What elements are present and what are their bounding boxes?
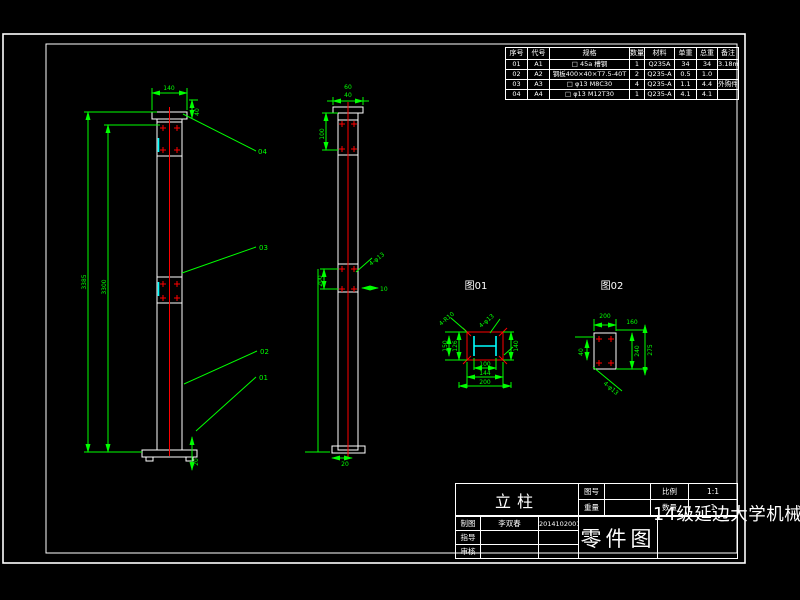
bom-cell: A3	[528, 80, 550, 90]
dim-text: 126	[452, 340, 459, 352]
side-dim-upper: 100	[319, 113, 338, 150]
bom-header: 单重	[675, 48, 697, 60]
bom-cell: Q235-A	[645, 70, 675, 80]
bom-cell: 0.5	[675, 70, 697, 80]
balloon-04: 04	[258, 148, 267, 156]
bom-cell: 4.4	[697, 80, 718, 90]
dim-text: 160	[626, 319, 638, 326]
scale-label: 比例	[651, 484, 689, 500]
bom-table: 序号 代号 规格 数量 材料 单重 总重 备注 01 A1 □ 45a 槽钢 1…	[505, 47, 739, 100]
weight-value	[605, 500, 651, 516]
bom-cell	[718, 70, 739, 80]
side-view: 60 40 100 200 4-φ13 10 20	[305, 84, 388, 468]
fig01-label: 图01	[465, 280, 488, 292]
dim-text: 60	[344, 84, 352, 91]
checker-name	[481, 545, 539, 559]
dim-text: 200	[599, 313, 611, 320]
part-balloons: 04 03 02 01	[182, 114, 269, 431]
bom-cell: Q235-A	[645, 90, 675, 100]
dim-text: 10	[380, 286, 388, 293]
detail-fig02: 图02 200 160 240 275 40 4-φ13	[575, 280, 654, 397]
drawing-no-label: 图号	[579, 484, 605, 500]
side-dim-top: 60 40	[327, 84, 369, 105]
bom-cell: 03	[506, 80, 528, 90]
drawn-label: 制图	[456, 517, 481, 531]
bom-cell: 02	[506, 70, 528, 80]
table-row: 02 A2 钢板400×40×T7.5-40T 2 Q235-A 0.5 1.0	[506, 70, 739, 80]
bom-cell: 1.0	[697, 70, 718, 80]
bom-cell: A1	[528, 60, 550, 70]
bom-header: 数量	[630, 48, 645, 60]
advisor-name	[481, 531, 539, 545]
table-row: 01 A1 □ 45a 槽钢 1 Q235A 34 34 3.18m	[506, 60, 739, 70]
bom-header: 总重	[697, 48, 718, 60]
dim-text: 40	[344, 92, 352, 99]
bom-header: 材料	[645, 48, 675, 60]
dim-text: 20	[341, 461, 349, 468]
bom-cell: 1	[630, 90, 645, 100]
bom-cell: 01	[506, 60, 528, 70]
scale-value: 1:1	[689, 484, 738, 500]
bom-cell: A2	[528, 70, 550, 80]
dim-text: 4-φ13	[478, 313, 496, 330]
fig02-plate-outline	[594, 333, 616, 369]
bom-cell: 钢板400×40×T7.5-40T	[550, 70, 630, 80]
bom-cell: 2	[630, 70, 645, 80]
drawn-id: 2014102001	[539, 517, 579, 531]
drawing-no-value	[605, 484, 651, 500]
bom-cell: Q235A	[645, 60, 675, 70]
bom-header-row: 序号 代号 规格 数量 材料 单重 总重 备注	[506, 48, 739, 60]
bom-cell: 34	[675, 60, 697, 70]
page-title: 立柱	[456, 484, 579, 516]
dim-text: 4-φ13	[602, 380, 620, 397]
bom-cell	[718, 90, 739, 100]
side-dim-middle: 200 4-φ13 10	[317, 251, 388, 452]
dim-text: 40	[194, 108, 201, 116]
bom-cell: 34	[697, 60, 718, 70]
bom-cell: 1.1	[675, 80, 697, 90]
front-dim-top: 140 40	[152, 85, 201, 118]
side-dim-base: 20	[305, 452, 352, 468]
bom-cell: □ φ13 M12T30	[550, 90, 630, 100]
front-dim-height: 3385 3300	[81, 112, 160, 452]
bom-header: 代号	[528, 48, 550, 60]
balloon-01: 01	[259, 374, 268, 382]
dim-text: 140	[513, 340, 520, 352]
table-row: 04 A4 □ φ13 M12T30 1 Q235-A 4.1 4.1	[506, 90, 739, 100]
dim-text: 40	[578, 348, 585, 356]
balloon-03: 03	[259, 244, 268, 252]
bom-cell: □ φ13 M8C30	[550, 80, 630, 90]
fig01-channel-section	[474, 336, 496, 356]
checker-label: 审核	[456, 545, 481, 559]
doc-type: 零件图	[579, 517, 658, 559]
fig02-label: 图02	[601, 280, 624, 292]
bom-cell: A4	[528, 90, 550, 100]
bom-cell: 1	[630, 60, 645, 70]
school-name: 14级延边大学机械系	[653, 501, 800, 526]
advisor-date	[539, 531, 579, 545]
bom-header: 规格	[550, 48, 630, 60]
fig02-hole-marks	[596, 336, 614, 366]
bom-header: 序号	[506, 48, 528, 60]
bom-cell: □ 45a 槽钢	[550, 60, 630, 70]
balloon-02: 02	[260, 348, 269, 356]
cad-sheet: 140 40 3385 3300 20 04 03	[0, 0, 800, 600]
dim-text: 240	[634, 345, 641, 357]
bom-cell: 04	[506, 90, 528, 100]
dim-text: 150	[442, 340, 449, 352]
bom-cell: Q235-A	[645, 80, 675, 90]
bom-cell: 外购件	[718, 80, 739, 90]
bom-cell: 4	[630, 80, 645, 90]
dim-text: 200	[479, 379, 491, 386]
weight-label: 重量	[579, 500, 605, 516]
front-dim-base: 20	[120, 437, 200, 470]
dim-text: 100	[319, 128, 326, 140]
front-view: 140 40 3385 3300 20 04 03	[81, 85, 269, 470]
drawn-name: 李双春	[481, 517, 539, 531]
dim-text: 3385	[81, 274, 88, 289]
dim-text: 144	[479, 370, 491, 377]
dim-text: 20	[193, 458, 200, 466]
checker-date	[539, 545, 579, 559]
dim-text: 275	[647, 344, 654, 356]
bom-cell: 3.18m	[718, 60, 739, 70]
advisor-label: 指导	[456, 531, 481, 545]
bom-cell: 4.1	[697, 90, 718, 100]
dim-text: 3300	[101, 279, 108, 294]
detail-fig01: 图01 126 150 140	[438, 280, 520, 388]
dim-text: 100	[479, 361, 491, 368]
dim-text: 4-φ13	[368, 251, 386, 267]
bom-cell: 4.1	[675, 90, 697, 100]
bom-header: 备注	[718, 48, 739, 60]
dim-text: 140	[163, 85, 175, 92]
dim-text: 4-R10	[438, 311, 456, 328]
table-row: 03 A3 □ φ13 M8C30 4 Q235-A 1.1 4.4 外购件	[506, 80, 739, 90]
